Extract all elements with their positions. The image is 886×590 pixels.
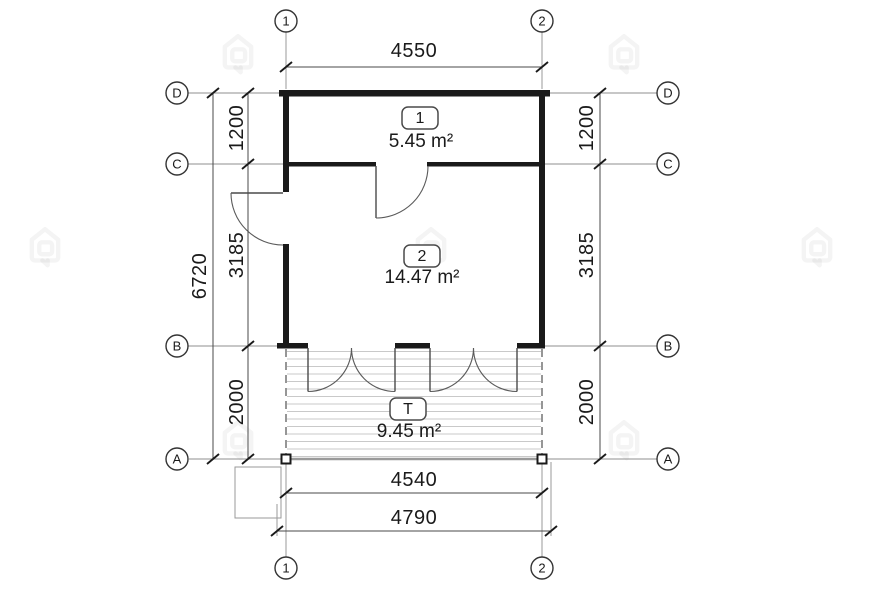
dim-right-segment-cb: 3185 bbox=[576, 232, 598, 279]
terrace-door2-left-arc bbox=[430, 348, 474, 392]
wall-b-segment-3 bbox=[517, 343, 545, 349]
terrace-area: 9.45 m² bbox=[377, 421, 441, 442]
terrace-post-left bbox=[282, 455, 291, 464]
room-1-number: 1 bbox=[416, 110, 425, 127]
dim-right-segment-dc: 1200 bbox=[576, 105, 598, 152]
terrace-door2-right-arc bbox=[474, 348, 518, 392]
dim-left-total: 6720 bbox=[189, 253, 211, 300]
wall-b-segment-2 bbox=[395, 343, 430, 349]
house-logo-watermark-icon bbox=[611, 422, 637, 458]
wall-b-segment-1 bbox=[277, 343, 308, 349]
room-labels: 1 5.45 m² 2 14.47 m² T 9.45 m² bbox=[377, 107, 460, 442]
room-2-area: 14.47 m² bbox=[385, 267, 460, 288]
dim-right-segment-ba: 2000 bbox=[576, 379, 598, 426]
grid-bubble-B-right-label: B bbox=[664, 339, 673, 354]
house-logo-watermark-icon bbox=[611, 36, 637, 72]
grid-bubble-D-left-label: D bbox=[172, 86, 181, 101]
grid-bubble-A-right-label: A bbox=[664, 452, 673, 467]
doors bbox=[231, 166, 517, 392]
wall-left-lower bbox=[283, 244, 289, 348]
dim-left-segment-ba: 2000 bbox=[226, 379, 248, 426]
grid-bubble-1-top-label: 1 bbox=[282, 14, 289, 29]
grid-bubble-C-left-label: C bbox=[172, 157, 181, 172]
house-logo-watermark-icon bbox=[225, 36, 251, 72]
wall-interior-right bbox=[427, 162, 539, 167]
dim-top-width: 4550 bbox=[391, 40, 438, 62]
wall-left-upper bbox=[283, 90, 289, 192]
wall-top bbox=[279, 90, 550, 97]
grid-bubble-1-bottom-label: 1 bbox=[282, 561, 289, 576]
entry-step bbox=[235, 467, 281, 518]
room-1-area: 5.45 m² bbox=[389, 131, 453, 152]
grid-bubble-2-bottom-label: 2 bbox=[538, 561, 545, 576]
grid-bubble-B-left-label: B bbox=[173, 339, 182, 354]
house-logo-watermark-icon bbox=[804, 229, 830, 265]
dim-left-segment-cb: 3185 bbox=[226, 232, 248, 279]
grid-bubble-2-top-label: 2 bbox=[538, 14, 545, 29]
interior-door-swing-arc bbox=[376, 166, 428, 218]
floor-plan-drawing: 4550 6720 1200 3185 2000 1200 3185 2000 … bbox=[0, 0, 886, 590]
wall-interior-left bbox=[289, 162, 376, 167]
wall-right bbox=[539, 90, 545, 348]
floor-plan-canvas: 4550 6720 1200 3185 2000 1200 3185 2000 … bbox=[0, 0, 886, 590]
terrace-post-right bbox=[538, 455, 547, 464]
dim-bottom-inner: 4540 bbox=[391, 469, 438, 491]
terrace-number: T bbox=[403, 401, 413, 418]
house-logo-watermark-icon bbox=[225, 422, 251, 458]
dim-bottom-outer: 4790 bbox=[391, 507, 438, 529]
dim-left-segment-dc: 1200 bbox=[226, 105, 248, 152]
grid-bubble-D-right-label: D bbox=[663, 86, 672, 101]
terrace-door1-right-arc bbox=[352, 348, 396, 392]
grid-bubble-C-right-label: C bbox=[663, 157, 672, 172]
room-2-number: 2 bbox=[418, 248, 427, 265]
terrace-door1-left-arc bbox=[308, 348, 352, 392]
grid-bubble-A-left-label: A bbox=[173, 452, 182, 467]
house-logo-watermark-icon bbox=[32, 229, 58, 265]
